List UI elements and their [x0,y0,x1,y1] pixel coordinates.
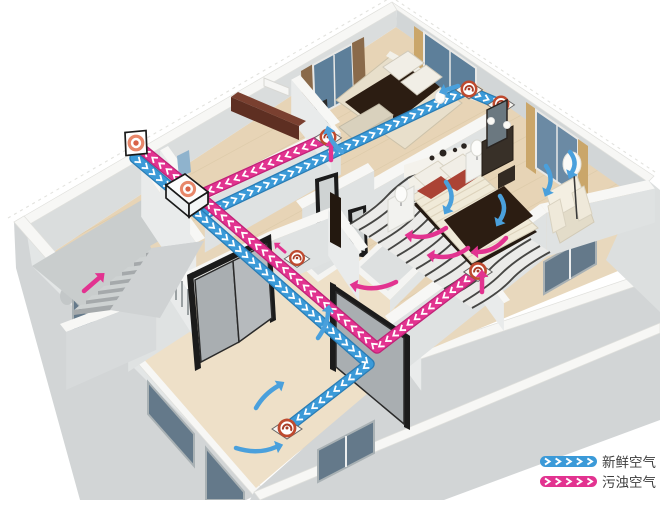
svg-text:污浊空气: 污浊空气 [602,475,656,490]
svg-text:新鲜空气: 新鲜空气 [602,455,656,470]
